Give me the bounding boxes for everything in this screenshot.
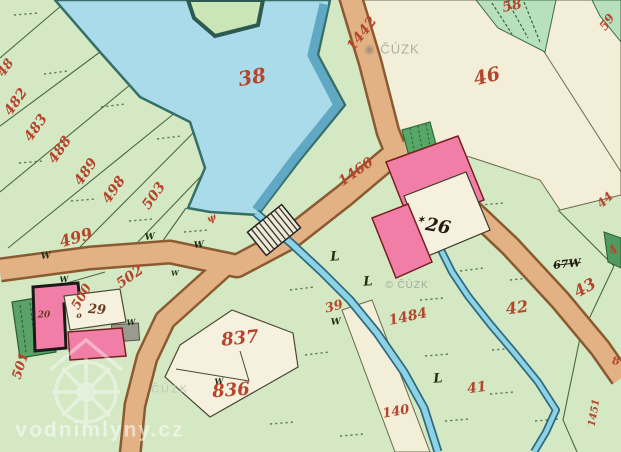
- mill-south-wing: [68, 328, 126, 360]
- cadastral-map-canvas[interactable]: 4848248348848949850349950050150238837836…: [0, 0, 621, 452]
- map-background: [0, 0, 621, 452]
- mill-courtyard: [64, 289, 126, 330]
